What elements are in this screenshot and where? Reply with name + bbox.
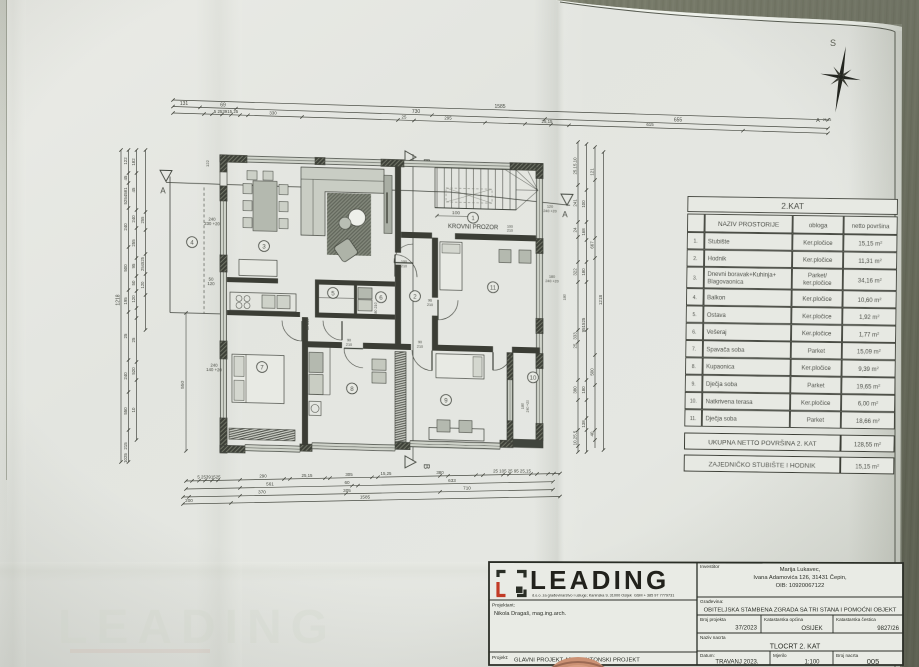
svg-text:100: 100	[452, 210, 460, 216]
svg-text:550: 550	[180, 380, 186, 388]
svg-text:24: 24	[573, 227, 578, 232]
svg-text:80 210: 80 210	[306, 319, 310, 330]
svg-text:4.: 4.	[693, 295, 697, 301]
svg-text:254525: 254525	[140, 256, 145, 271]
svg-text:15,15 m2: 15,15 m2	[858, 240, 883, 248]
svg-text:7: 7	[260, 364, 264, 371]
svg-text:240 +20: 240 +20	[545, 279, 558, 283]
svg-text:Katastarska čestica: Katastarska čestica	[836, 617, 876, 622]
svg-text:Balkon: Balkon	[707, 295, 725, 301]
svg-text:Blagovaonica: Blagovaonica	[707, 279, 744, 286]
svg-text:25,15,10: 25,15,10	[573, 157, 578, 175]
svg-text:290: 290	[259, 474, 267, 479]
svg-text:Vešeraj: Vešeraj	[707, 330, 727, 336]
svg-text:Dnevni boravak+Kuhinja+: Dnevni boravak+Kuhinja+	[707, 272, 776, 279]
svg-text:Projekt:: Projekt:	[492, 655, 508, 661]
svg-text:380: 380	[573, 386, 578, 394]
svg-text:60: 60	[344, 480, 350, 485]
svg-text:Kupaonica: Kupaonica	[706, 364, 735, 370]
svg-text:140 +20: 140 +20	[206, 367, 222, 372]
svg-text:667: 667	[590, 241, 595, 249]
svg-text:8.: 8.	[692, 364, 696, 370]
svg-text:561: 561	[266, 482, 274, 487]
svg-text:5 25391525: 5 25391525	[197, 475, 221, 480]
svg-text:Dječja soba: Dječja soba	[706, 382, 738, 388]
svg-text:370: 370	[258, 490, 266, 495]
svg-text:25: 25	[402, 114, 407, 119]
svg-text:50: 50	[131, 280, 136, 285]
svg-text:1218: 1218	[598, 294, 603, 305]
svg-text:Spavača soba: Spavača soba	[706, 347, 745, 354]
svg-text:5: 5	[331, 290, 335, 297]
svg-text:TRAVANJ 2023.: TRAVANJ 2023.	[715, 660, 758, 666]
svg-text:1:100: 1:100	[804, 660, 820, 666]
svg-text:Ker.pločice: Ker.pločice	[803, 258, 833, 264]
svg-text:9.: 9.	[691, 381, 695, 387]
svg-text:615: 615	[646, 122, 654, 127]
svg-text:200: 200	[185, 498, 193, 503]
svg-text:7.: 7.	[692, 347, 696, 353]
svg-text:322: 322	[573, 268, 578, 276]
svg-text:305: 305	[345, 472, 353, 477]
svg-text:Parket: Parket	[808, 349, 826, 355]
svg-text:Ker.pločice: Ker.pločice	[801, 366, 831, 372]
svg-text:15,15 m2: 15,15 m2	[855, 462, 880, 470]
svg-text:Parket: Parket	[807, 418, 825, 424]
svg-text:Ivana Adamovića 126, 31431 Čep: Ivana Adamovića 126, 31431 Čepin,	[753, 574, 847, 581]
svg-text:210: 210	[401, 264, 407, 268]
svg-text:1585: 1585	[494, 104, 505, 110]
svg-text:45: 45	[123, 175, 128, 180]
svg-text:Stubište: Stubište	[708, 239, 730, 245]
svg-text:1: 1	[471, 215, 475, 222]
svg-text:5.: 5.	[692, 312, 696, 318]
svg-text:11,31 m2: 11,31 m2	[858, 257, 882, 265]
svg-text:Ker.pločice: Ker.pločice	[802, 314, 832, 320]
svg-text:215: 215	[123, 442, 128, 450]
svg-text:Ker.pločice: Ker.pločice	[801, 400, 831, 406]
svg-text:25,15: 25,15	[823, 118, 832, 122]
svg-text:6.: 6.	[692, 329, 696, 335]
svg-text:210: 210	[507, 229, 513, 233]
svg-text:550: 550	[123, 407, 128, 415]
svg-text:520: 520	[131, 367, 136, 375]
svg-text:2.KAT: 2.KAT	[781, 201, 804, 211]
svg-text:500: 500	[590, 368, 595, 376]
svg-text:25: 25	[123, 333, 128, 338]
svg-text:241: 241	[573, 199, 578, 207]
svg-text:Građevina:: Građevina:	[700, 599, 723, 605]
svg-text:11.: 11.	[690, 416, 697, 422]
svg-text:255: 255	[131, 239, 136, 247]
svg-text:TLOCRT 2. KAT: TLOCRT 2. KAT	[770, 644, 821, 651]
svg-text:A: A	[160, 186, 166, 195]
svg-text:1025: 1025	[123, 453, 128, 463]
svg-text:19,65 m2: 19,65 m2	[856, 382, 881, 390]
svg-text:Projektant:: Projektant:	[492, 603, 515, 609]
svg-text:obloga: obloga	[809, 222, 828, 229]
svg-text:333: 333	[573, 332, 578, 340]
svg-text:netto površina: netto površina	[852, 224, 890, 231]
svg-text:69: 69	[220, 102, 226, 108]
svg-text:240: 240	[123, 223, 128, 231]
svg-text:B: B	[422, 464, 431, 470]
svg-text:180: 180	[521, 403, 525, 409]
svg-text:1585: 1585	[360, 495, 371, 500]
svg-text:d.o.o. za građevinarstvo i usl: d.o.o. za građevinarstvo i usluge; Kanin…	[532, 594, 674, 598]
svg-text:951525: 951525	[581, 317, 586, 332]
svg-text:25: 25	[573, 343, 578, 348]
svg-text:Ostava: Ostava	[707, 313, 727, 319]
svg-text:Katastarska općina: Katastarska općina	[764, 617, 804, 622]
svg-text:Parket/: Parket/	[808, 273, 827, 279]
svg-text:120: 120	[131, 295, 136, 303]
svg-text:9,39 m2: 9,39 m2	[858, 365, 879, 373]
svg-text:1218: 1218	[116, 294, 122, 305]
svg-text:OIB: 10920067122: OIB: 10920067122	[776, 583, 825, 589]
svg-text:120: 120	[140, 281, 145, 289]
svg-text:5 253915,25: 5 253915,25	[214, 109, 239, 114]
svg-text:34,16 m2: 34,16 m2	[858, 276, 883, 284]
svg-text:OBITELJSKA STAMBENA ZGRADA SA: OBITELJSKA STAMBENA ZGRADA SA TRI STANA …	[704, 607, 897, 614]
svg-text:120: 120	[207, 281, 215, 286]
svg-text:80 210: 80 210	[374, 302, 378, 313]
svg-text:10: 10	[131, 407, 136, 412]
svg-text:Broj nacrta: Broj nacrta	[836, 653, 859, 658]
svg-text:100: 100	[581, 200, 586, 208]
svg-text:168: 168	[581, 228, 586, 236]
svg-text:18,66 m2: 18,66 m2	[856, 417, 881, 425]
svg-text:730: 730	[412, 109, 421, 115]
svg-text:4: 4	[190, 239, 194, 246]
svg-text:40: 40	[590, 431, 595, 436]
svg-text:230 +20: 230 +20	[204, 221, 220, 226]
svg-text:240: 240	[123, 372, 128, 380]
svg-text:710: 710	[463, 486, 471, 491]
svg-text:240 +20: 240 +20	[543, 209, 556, 213]
svg-text:210: 210	[346, 343, 352, 347]
svg-text:45: 45	[131, 187, 136, 192]
svg-text:240 +20: 240 +20	[526, 400, 530, 413]
svg-text:Marija Lukavec,: Marija Lukavec,	[780, 567, 821, 573]
svg-text:10,25,5: 10,25,5	[573, 430, 578, 445]
svg-text:1,92 m2: 1,92 m2	[859, 313, 880, 321]
svg-text:Nikola Dragaš, mag.ing.arch.: Nikola Dragaš, mag.ing.arch.	[494, 611, 567, 617]
svg-text:Dječja soba: Dječja soba	[705, 416, 737, 422]
svg-text:Parket: Parket	[807, 383, 825, 389]
svg-text:Datum:: Datum:	[700, 653, 715, 658]
svg-text:A: A	[816, 118, 820, 124]
svg-text:9827/26: 9827/26	[877, 626, 899, 632]
svg-text:25 105 25 95 25,15: 25 105 25 95 25,15	[493, 469, 531, 474]
svg-text:11: 11	[490, 284, 497, 291]
svg-text:2.: 2.	[693, 256, 697, 262]
svg-text:NAZIV PROSTORIJE: NAZIV PROSTORIJE	[718, 221, 779, 229]
svg-text:1,77 m2: 1,77 m2	[859, 330, 880, 338]
svg-text:10,60 m2: 10,60 m2	[858, 296, 883, 304]
svg-text:Broj projekta: Broj projekta	[700, 617, 726, 622]
svg-text:3.: 3.	[693, 275, 697, 281]
svg-text:255: 255	[140, 216, 145, 224]
svg-text:15,09 m2: 15,09 m2	[857, 348, 882, 356]
svg-text:1.: 1.	[693, 239, 697, 245]
svg-text:195: 195	[123, 297, 128, 305]
svg-text:9: 9	[444, 397, 448, 404]
svg-text:180: 180	[581, 268, 586, 276]
svg-text:182: 182	[131, 158, 136, 166]
svg-text:Naziv nacrta: Naziv nacrta	[700, 635, 726, 640]
svg-text:25: 25	[131, 337, 136, 342]
svg-text:Investitor: Investitor	[700, 564, 720, 570]
svg-text:131: 131	[180, 101, 189, 107]
svg-text:180: 180	[563, 294, 567, 300]
svg-text:122: 122	[123, 157, 128, 165]
svg-text:Ker.pločice: Ker.pločice	[802, 331, 832, 337]
svg-text:240: 240	[131, 215, 136, 223]
svg-text:500: 500	[123, 264, 128, 272]
svg-text:10: 10	[530, 375, 537, 382]
svg-text:Ker.pločice: Ker.pločice	[803, 240, 833, 246]
svg-text:305: 305	[343, 488, 351, 493]
svg-text:330: 330	[269, 110, 277, 115]
svg-text:A: A	[562, 210, 568, 219]
svg-text:122: 122	[205, 159, 210, 167]
svg-text:138: 138	[581, 420, 586, 428]
svg-text:180: 180	[581, 386, 586, 394]
svg-text:3: 3	[262, 243, 266, 250]
svg-text:LEADING: LEADING	[530, 565, 669, 595]
svg-text:S: S	[830, 38, 836, 48]
svg-text:Ker.pločice: Ker.pločice	[802, 297, 832, 303]
svg-text:Hodnik: Hodnik	[708, 256, 728, 262]
svg-text:8: 8	[350, 386, 354, 393]
svg-text:295: 295	[444, 116, 452, 121]
svg-text:655: 655	[674, 118, 683, 124]
svg-text:15,25: 15,25	[381, 471, 393, 476]
svg-text:Natkrivena terasa: Natkrivena terasa	[706, 399, 754, 406]
svg-text:25,15: 25,15	[542, 119, 554, 124]
svg-text:005: 005	[867, 657, 880, 666]
svg-text:LEADING: LEADING	[58, 601, 337, 654]
svg-text:ker.pločice: ker.pločice	[803, 280, 832, 286]
svg-text:380: 380	[436, 470, 444, 475]
svg-text:10.: 10.	[690, 399, 697, 405]
svg-text:25,15: 25,15	[302, 473, 314, 478]
svg-text:37/2023: 37/2023	[735, 626, 757, 632]
svg-text:121: 121	[590, 168, 595, 176]
svg-text:6: 6	[379, 294, 383, 301]
svg-text:2: 2	[413, 293, 417, 300]
svg-text:95: 95	[131, 263, 136, 268]
svg-text:5254581: 5254581	[123, 187, 128, 205]
svg-text:210: 210	[417, 345, 423, 349]
svg-text:6,00 m2: 6,00 m2	[858, 399, 879, 407]
svg-text:OSIJEK: OSIJEK	[801, 626, 822, 632]
svg-text:Mjerilo: Mjerilo	[773, 653, 787, 658]
svg-text:633: 633	[448, 478, 456, 483]
svg-text:210: 210	[427, 303, 433, 307]
